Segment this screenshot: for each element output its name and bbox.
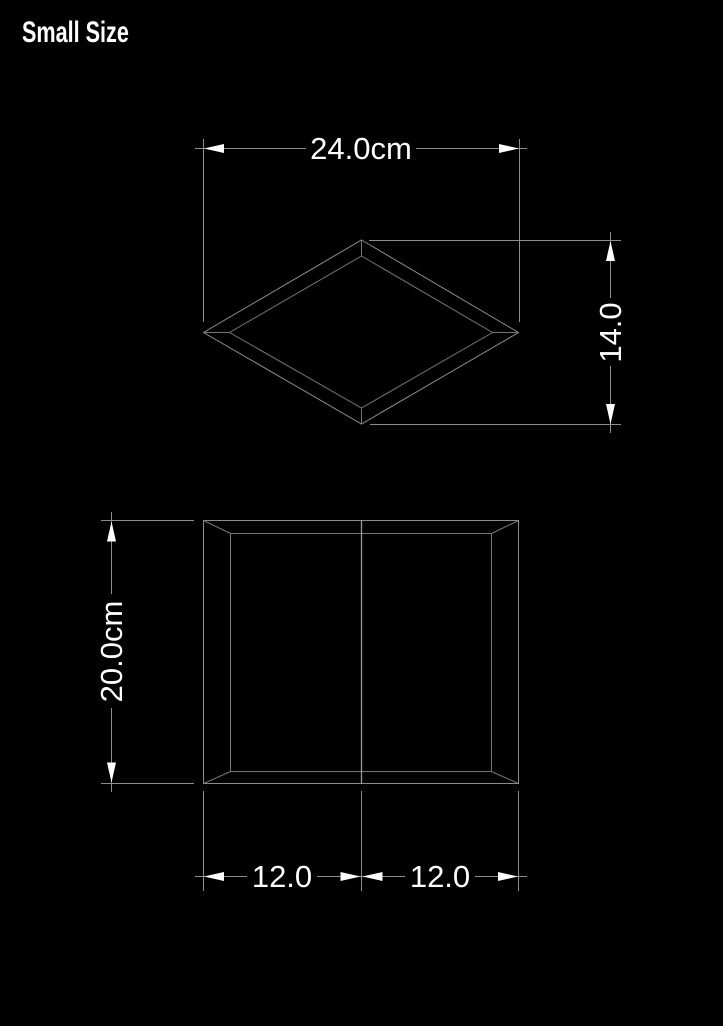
dim-arrow-down [606, 404, 615, 424]
dim-arrow-up [107, 522, 116, 542]
front-view-bevel-top-right [492, 521, 519, 534]
dim-arrow-left [204, 144, 224, 153]
front-view-bevel-bottom-left [204, 772, 231, 784]
top-view-outer-outline [204, 240, 519, 424]
dim-arrow-up [606, 241, 615, 261]
top-view [204, 240, 519, 424]
dim-arrow-right [498, 872, 518, 881]
dimension-label-top-depth: 14.0 [593, 302, 628, 362]
front-view-bevel-bottom-right [492, 772, 519, 784]
front-view [204, 521, 519, 784]
dim-arrow-left [363, 872, 383, 881]
dim-arrow-right [499, 144, 519, 153]
technical-drawing: 24.0cm 14.0 [0, 0, 723, 1026]
dimension-label-front-height: 20.0cm [94, 601, 129, 703]
front-view-bevel-top-left [204, 521, 231, 534]
top-view-inner-outline [230, 256, 493, 408]
dimension-label-front-width-left: 12.0 [252, 859, 312, 894]
dim-arrow-left [204, 872, 224, 881]
dimension-label-front-width-right: 12.0 [410, 859, 470, 894]
dim-arrow-down [107, 763, 116, 783]
dimension-top-width: 24.0cm [195, 131, 527, 322]
drawing-canvas: Small Size 24.0cm [0, 0, 723, 1026]
dimension-front-height: 20.0cm [94, 512, 194, 792]
dim-arrow-right [341, 872, 361, 881]
dimension-label-top-width: 24.0cm [310, 131, 412, 166]
dimension-front-widths: 12.0 12.0 [195, 791, 527, 894]
